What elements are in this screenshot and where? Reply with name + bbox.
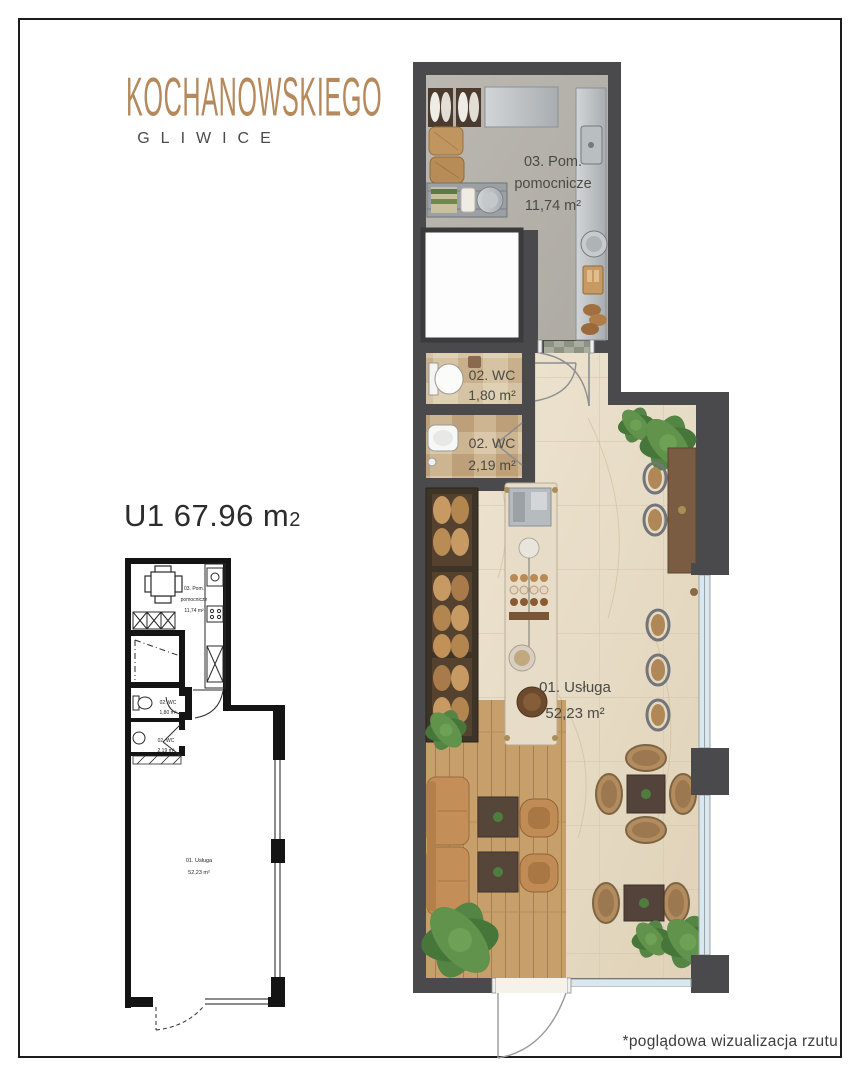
mini-kitchen (205, 564, 225, 688)
service-label: 01. Usługa (539, 679, 611, 696)
mini-service-area: 52,23 m² (188, 870, 210, 876)
wc1-label: 02. WC (469, 367, 516, 383)
flour-sacks (429, 127, 464, 183)
doormat (544, 341, 594, 353)
steel-table (485, 87, 558, 127)
aux-label-2: pomocnicze (514, 176, 591, 192)
brand-city: GLIWICE (74, 130, 334, 148)
wc2-area: 2,19 m² (468, 457, 516, 473)
mini-crates (133, 612, 175, 629)
two-seat-table-group (593, 883, 689, 923)
mini-aux-label-1: 03. Pom. (184, 586, 204, 592)
mini-windows (205, 760, 280, 1004)
mini-wc1-area: 1,80 m² (160, 710, 177, 716)
unit-sup: 2 (289, 509, 301, 531)
window-ledge-knob (690, 588, 698, 596)
mini-wc2-area: 2,19 m² (158, 748, 175, 754)
unit-label: U1 67.96 m (124, 498, 289, 533)
cafe-table-1 (478, 797, 558, 837)
aux-label-1: 03. Pom. (524, 154, 582, 170)
page: KOCHANOWSKIEGO GLIWICE U1 67.96 m2 (0, 0, 864, 1080)
brand-name: KOCHANOWSKIEGO (126, 66, 282, 128)
bottom-window (570, 979, 691, 993)
mini-wc2-label: 02. WC (158, 738, 175, 744)
unit-area-heading: U1 67.96 m2 (124, 498, 301, 534)
mini-wc1-label: 02. WC (160, 700, 177, 706)
wc2-label: 02. WC (469, 435, 516, 451)
mini-hatch-strip (133, 756, 181, 764)
footnote: *poglądowa wizualizacja rzutu (623, 1033, 838, 1051)
wc1-area: 1,80 m² (468, 387, 516, 403)
main-floorplan: 03. Pom. pomocnicze 11,74 m² 02. WC 1,80… (408, 58, 734, 1062)
mini-coldroom-mark (135, 640, 180, 680)
mini-aux-label-2: pomocnicze (181, 597, 208, 603)
brand-logo: KOCHANOWSKIEGO GLIWICE (74, 66, 334, 148)
bread-shelf (426, 488, 478, 742)
mini-aux-area: 11,74 m² (184, 608, 204, 614)
food-shelf (427, 183, 507, 217)
mini-service-label: 01. Usługa (186, 858, 213, 864)
aux-area: 11,74 m² (525, 198, 581, 214)
mini-floorplan: 03. Pom. pomocnicze 11,74 m² 02. WC 1,80… (123, 556, 291, 1034)
service-area: 52,23 m² (545, 705, 604, 722)
cold-room (423, 230, 521, 340)
mini-table-set (145, 566, 182, 603)
cafe-table-2 (478, 852, 558, 892)
sink-counter (576, 88, 607, 340)
bar-counter-knob (678, 506, 686, 514)
